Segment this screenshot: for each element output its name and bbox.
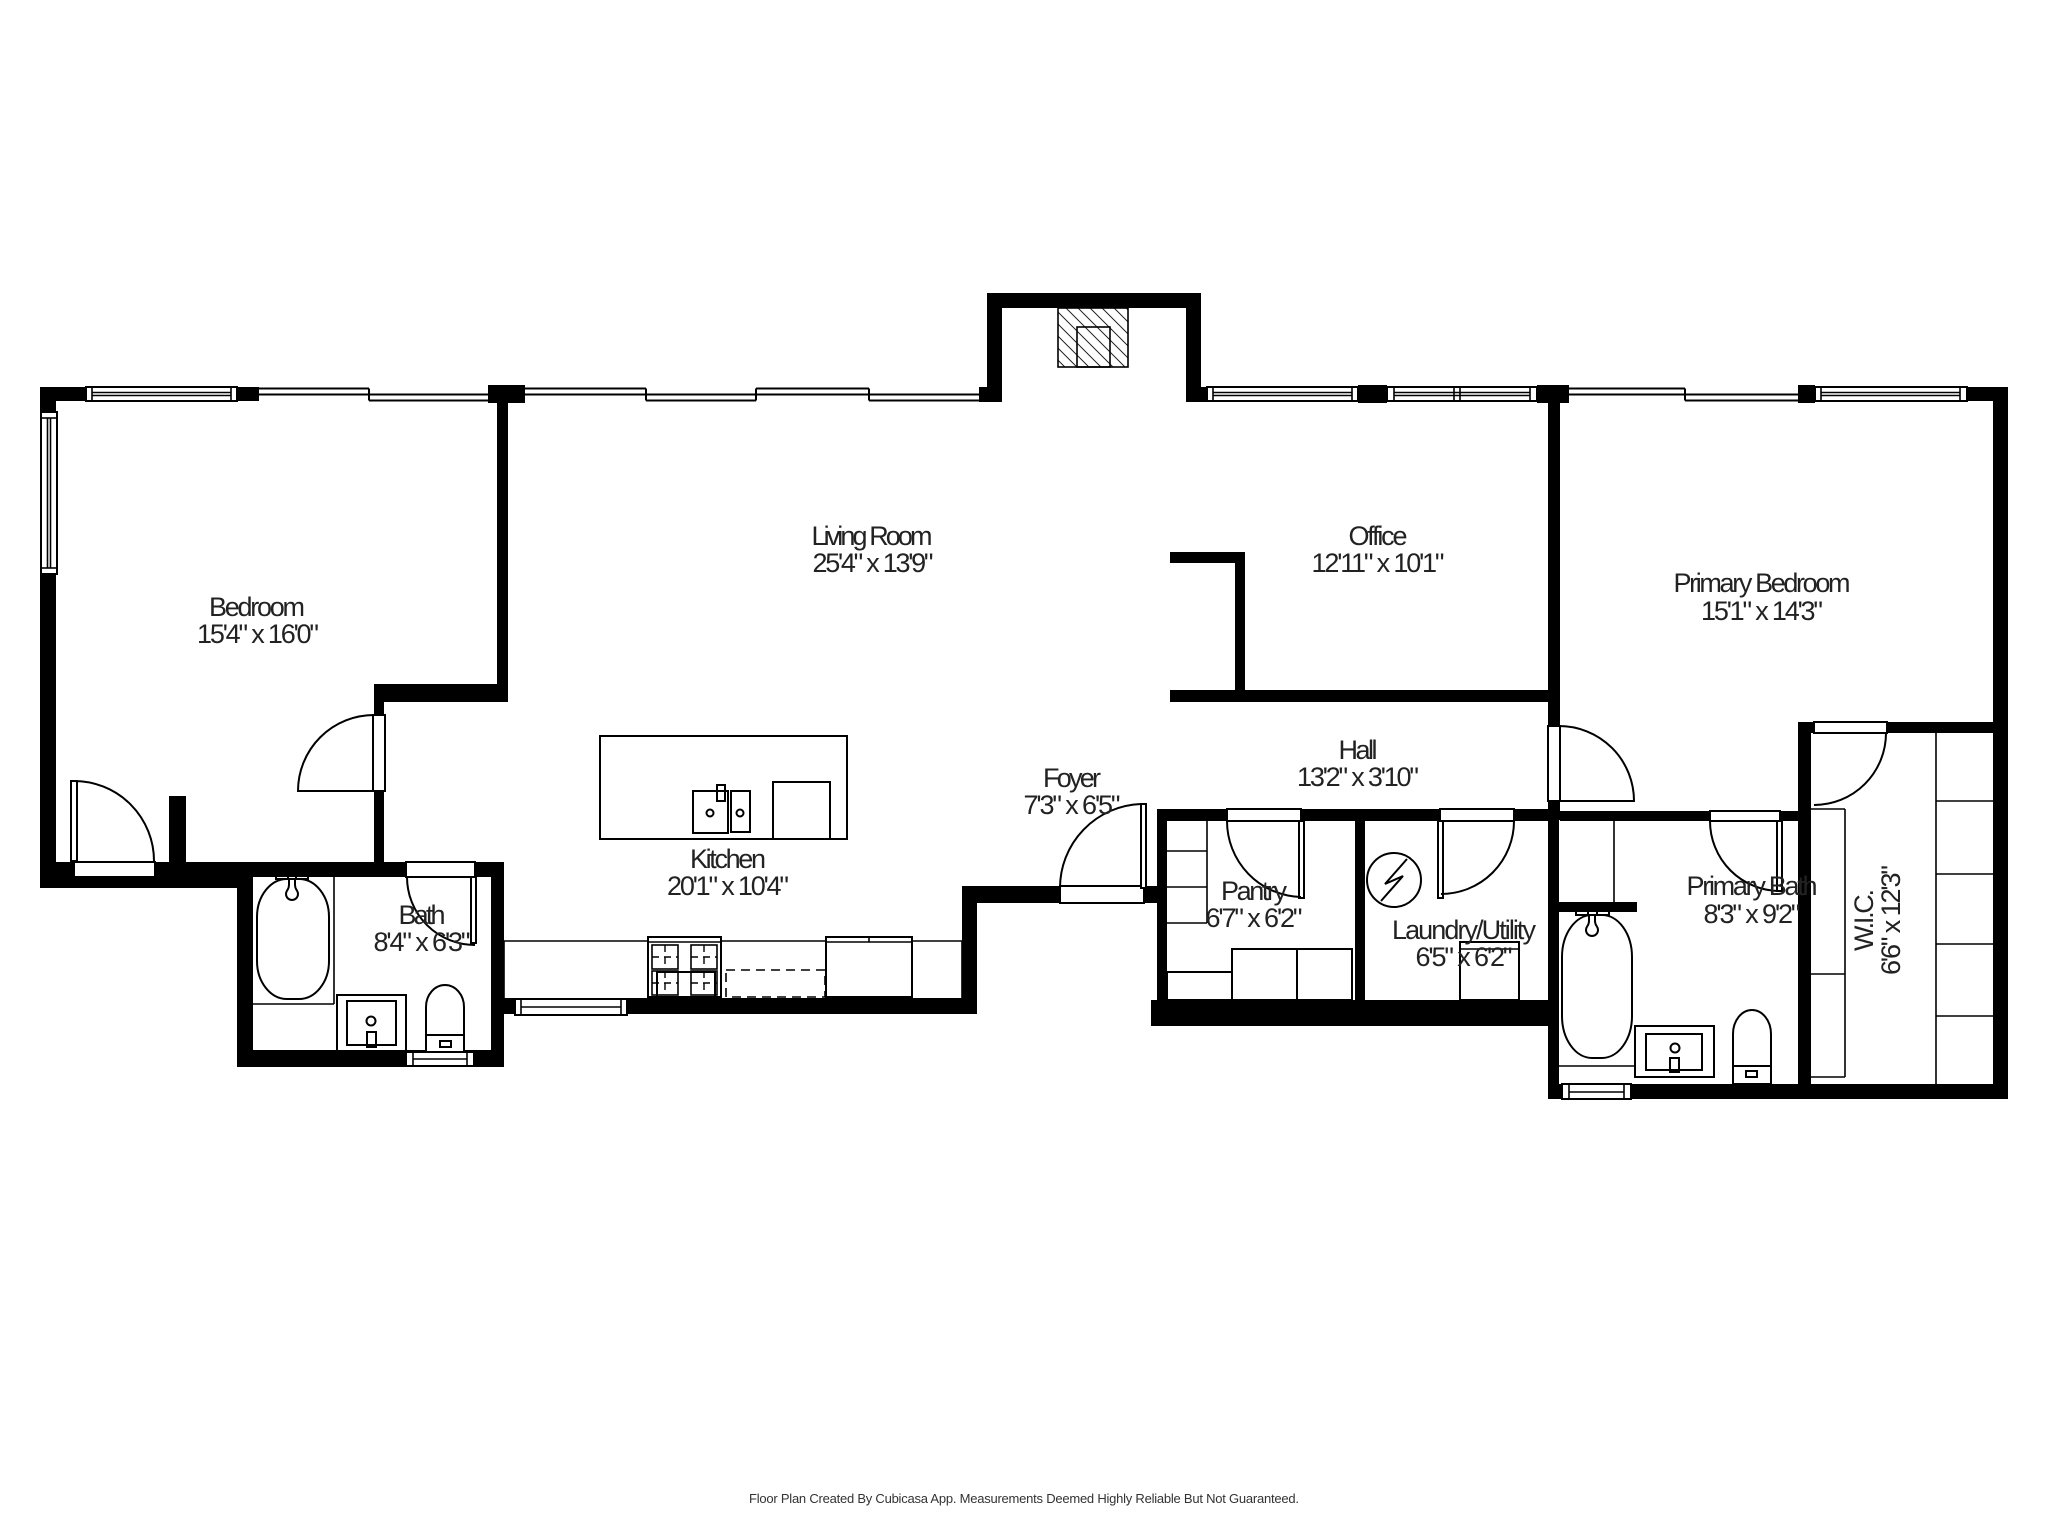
svg-text:8'3" x 9'2": 8'3" x 9'2" <box>1704 899 1801 929</box>
svg-text:6'5" x 6'2": 6'5" x 6'2" <box>1416 942 1513 972</box>
svg-text:Living Room: Living Room <box>812 521 933 551</box>
svg-text:7'3" x 6'5": 7'3" x 6'5" <box>1024 790 1121 820</box>
svg-text:Office: Office <box>1349 521 1408 551</box>
svg-text:Pantry: Pantry <box>1221 876 1288 906</box>
svg-text:20'1" x 10'4": 20'1" x 10'4" <box>667 871 789 901</box>
svg-text:12'11" x 10'1": 12'11" x 10'1" <box>1312 548 1445 578</box>
svg-text:Kitchen: Kitchen <box>690 844 766 874</box>
svg-text:Primary Bath: Primary Bath <box>1687 871 1818 901</box>
svg-text:Bath: Bath <box>399 900 446 930</box>
svg-text:Foyer: Foyer <box>1043 763 1101 793</box>
svg-text:Primary Bedroom: Primary Bedroom <box>1674 568 1851 598</box>
svg-text:Hall: Hall <box>1339 735 1378 765</box>
svg-text:Floor Plan Created By Cubicasa: Floor Plan Created By Cubicasa App. Meas… <box>749 1491 1299 1506</box>
svg-text:Bedroom: Bedroom <box>209 592 305 622</box>
svg-text:6'6" x 12'3": 6'6" x 12'3" <box>1876 865 1906 975</box>
svg-text:15'4" x 16'0": 15'4" x 16'0" <box>197 619 319 649</box>
svg-text:25'4" x 13'9": 25'4" x 13'9" <box>813 548 934 578</box>
svg-text:13'2" x 3'10": 13'2" x 3'10" <box>1297 762 1419 792</box>
svg-text:Laundry/Utility: Laundry/Utility <box>1392 915 1537 945</box>
svg-text:15'1" x 14'3": 15'1" x 14'3" <box>1701 596 1823 626</box>
svg-text:8'4" x 6'3": 8'4" x 6'3" <box>374 927 471 957</box>
svg-text:6'7" x 6'2": 6'7" x 6'2" <box>1206 903 1303 933</box>
svg-text:W.I.C.: W.I.C. <box>1849 889 1879 951</box>
